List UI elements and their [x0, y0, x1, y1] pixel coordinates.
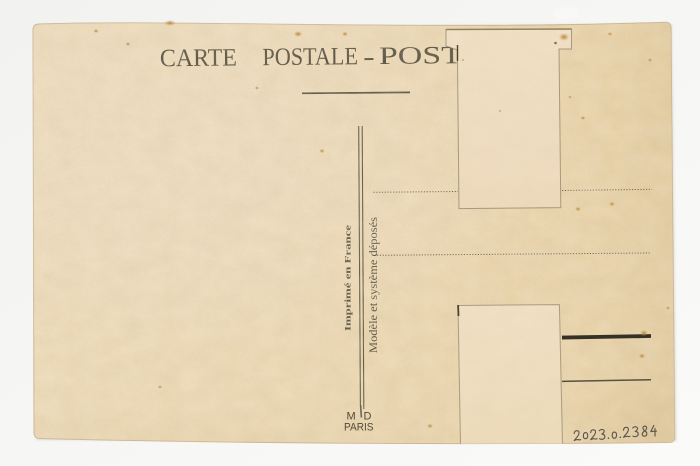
- svg-text:PARIS: PARIS: [344, 422, 374, 434]
